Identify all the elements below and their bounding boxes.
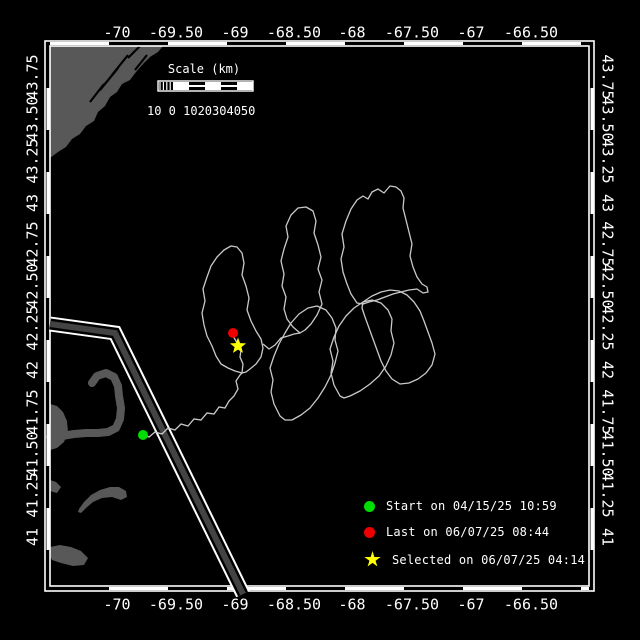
frame-band-segment bbox=[109, 587, 168, 590]
frame-band-segment bbox=[591, 256, 594, 298]
frame-band-segment bbox=[47, 46, 50, 88]
axis-tick-label: -70 bbox=[103, 26, 130, 41]
axis-tick-label: 43.25 bbox=[600, 138, 615, 183]
survey-loop-2 bbox=[281, 207, 322, 333]
frame-band-segment bbox=[47, 550, 50, 586]
axis-tick-label: 43.50 bbox=[600, 96, 615, 141]
frame-band-segment bbox=[109, 42, 168, 45]
frame-band-segment bbox=[591, 550, 594, 586]
frame-band-segment bbox=[47, 214, 50, 256]
frame-band-segment bbox=[47, 424, 50, 466]
axis-tick-label: 42.25 bbox=[600, 305, 615, 350]
start-marker[interactable] bbox=[138, 430, 148, 440]
survey-loop-3 bbox=[341, 186, 428, 304]
axis-tick-label: 42.75 bbox=[600, 221, 615, 266]
frame-band-segment bbox=[591, 466, 594, 508]
axis-tick-label: 41.75 bbox=[600, 389, 615, 434]
frame-band-segment bbox=[591, 382, 594, 424]
glider-track-map: -70-69.50-69-68.50-68-67.50-67-66.50-70-… bbox=[0, 0, 640, 640]
frame-band-segment bbox=[591, 172, 594, 214]
axis-tick-label: 42.25 bbox=[26, 305, 41, 350]
frame-band-segment bbox=[522, 587, 581, 590]
axis-tick-label: 42.50 bbox=[26, 263, 41, 308]
axis-tick-label: 42.50 bbox=[600, 263, 615, 308]
frame-band-segment bbox=[591, 214, 594, 256]
axis-tick-label: -68.50 bbox=[267, 26, 321, 41]
map-canvas bbox=[0, 0, 640, 640]
frame-band-segment bbox=[168, 587, 227, 590]
island-left-bit bbox=[50, 480, 61, 493]
frame-band-segment bbox=[47, 340, 50, 382]
axis-tick-label: 43 bbox=[26, 194, 41, 212]
maine-coast bbox=[50, 46, 163, 158]
frame-band-segment bbox=[47, 256, 50, 298]
frame-band-segment bbox=[345, 587, 404, 590]
axis-tick-label: 43.75 bbox=[600, 54, 615, 99]
frame-band-segment bbox=[591, 340, 594, 382]
frame-band-segment bbox=[581, 42, 589, 45]
frame-band-segment bbox=[522, 42, 581, 45]
scale-bar-title: Scale (km) bbox=[168, 62, 240, 76]
link-a-b bbox=[263, 333, 300, 349]
frame-band-segment bbox=[286, 42, 345, 45]
axis-tick-label: -69.50 bbox=[149, 598, 203, 613]
frame-band-segment bbox=[581, 587, 589, 590]
island-crescent bbox=[78, 487, 127, 513]
frame-band-segment bbox=[404, 587, 463, 590]
axis-tick-label: -69.50 bbox=[149, 26, 203, 41]
legend-item: Last on 06/07/25 08:44 bbox=[364, 525, 549, 539]
axis-tick-label: 42 bbox=[600, 361, 615, 379]
axis-tick-label: -66.50 bbox=[504, 598, 558, 613]
frame-band-segment bbox=[50, 42, 109, 45]
frame-band-segment bbox=[227, 42, 286, 45]
frame-band-segment bbox=[47, 382, 50, 424]
axis-tick-label: -68 bbox=[338, 26, 365, 41]
axis-tick-label: -66.50 bbox=[504, 26, 558, 41]
frame-band-segment bbox=[345, 42, 404, 45]
axis-tick-label: -67 bbox=[457, 26, 484, 41]
frame-band-segment bbox=[47, 172, 50, 214]
scale-bar-segment bbox=[205, 82, 221, 90]
axis-tick-label: -68 bbox=[338, 598, 365, 613]
frame-band-segment bbox=[47, 88, 50, 130]
frame-band-segment bbox=[404, 42, 463, 45]
axis-tick-label: -69 bbox=[221, 26, 248, 41]
frame-band-segment bbox=[591, 46, 594, 88]
axis-tick-label: -70 bbox=[103, 598, 130, 613]
axis-tick-label: 41.50 bbox=[26, 431, 41, 476]
frame-band-segment bbox=[463, 587, 522, 590]
frame-band-segment bbox=[591, 424, 594, 466]
axis-tick-label: 43.25 bbox=[26, 138, 41, 183]
frame-band-segment bbox=[50, 587, 109, 590]
legend-star-icon bbox=[364, 551, 381, 568]
island-vineyard bbox=[50, 545, 88, 566]
frame-band-segment bbox=[591, 508, 594, 550]
frame-band-segment bbox=[47, 130, 50, 172]
legend-dot-icon bbox=[364, 527, 375, 538]
legend-label: Selected on 06/07/25 04:14 bbox=[392, 553, 585, 567]
axis-tick-label: 41.25 bbox=[600, 472, 615, 517]
last-marker[interactable] bbox=[228, 328, 238, 338]
axis-tick-label: 43 bbox=[600, 194, 615, 212]
axis-tick-label: -68.50 bbox=[267, 598, 321, 613]
frame-band-segment bbox=[591, 130, 594, 172]
survey-loop-4 bbox=[270, 306, 338, 420]
frame-band-segment bbox=[286, 587, 345, 590]
legend-item: Start on 04/15/25 10:59 bbox=[364, 499, 557, 513]
axis-tick-label: 42.75 bbox=[26, 221, 41, 266]
frame-band-segment bbox=[47, 466, 50, 508]
axis-tick-label: 41.50 bbox=[600, 431, 615, 476]
axis-tick-label: 43.50 bbox=[26, 96, 41, 141]
legend-label: Start on 04/15/25 10:59 bbox=[386, 499, 557, 513]
survey-loop-1 bbox=[202, 246, 263, 373]
axis-tick-label: 43.75 bbox=[26, 54, 41, 99]
frame-band-segment bbox=[591, 298, 594, 340]
selected-marker[interactable] bbox=[230, 338, 246, 353]
axis-tick-label: 41 bbox=[600, 528, 615, 546]
cape-cod-body bbox=[50, 404, 68, 450]
axis-tick-label: -67 bbox=[457, 598, 484, 613]
scale-bar-numbers: 10 0 1020304050 bbox=[147, 104, 255, 118]
frame-band-segment bbox=[47, 298, 50, 340]
axis-tick-label: 42 bbox=[26, 361, 41, 379]
legend-label: Last on 06/07/25 08:44 bbox=[386, 525, 549, 539]
survey-loop-6 bbox=[362, 290, 435, 384]
frame-band-segment bbox=[463, 42, 522, 45]
axis-tick-label: -69 bbox=[221, 598, 248, 613]
survey-loop-5 bbox=[330, 300, 394, 398]
axis-tick-label: 41.75 bbox=[26, 389, 41, 434]
legend-dot-icon bbox=[364, 501, 375, 512]
frame-band-segment bbox=[591, 88, 594, 130]
frame-band-segment bbox=[168, 42, 227, 45]
axis-tick-label: 41.25 bbox=[26, 472, 41, 517]
axis-tick-label: -67.50 bbox=[385, 26, 439, 41]
axis-tick-label: -67.50 bbox=[385, 598, 439, 613]
axis-tick-label: 41 bbox=[26, 528, 41, 546]
legend-item: Selected on 06/07/25 04:14 bbox=[364, 551, 585, 568]
frame-band-segment bbox=[47, 508, 50, 550]
scale-bar-segment bbox=[237, 82, 253, 90]
scale-bar-segment bbox=[173, 82, 189, 90]
